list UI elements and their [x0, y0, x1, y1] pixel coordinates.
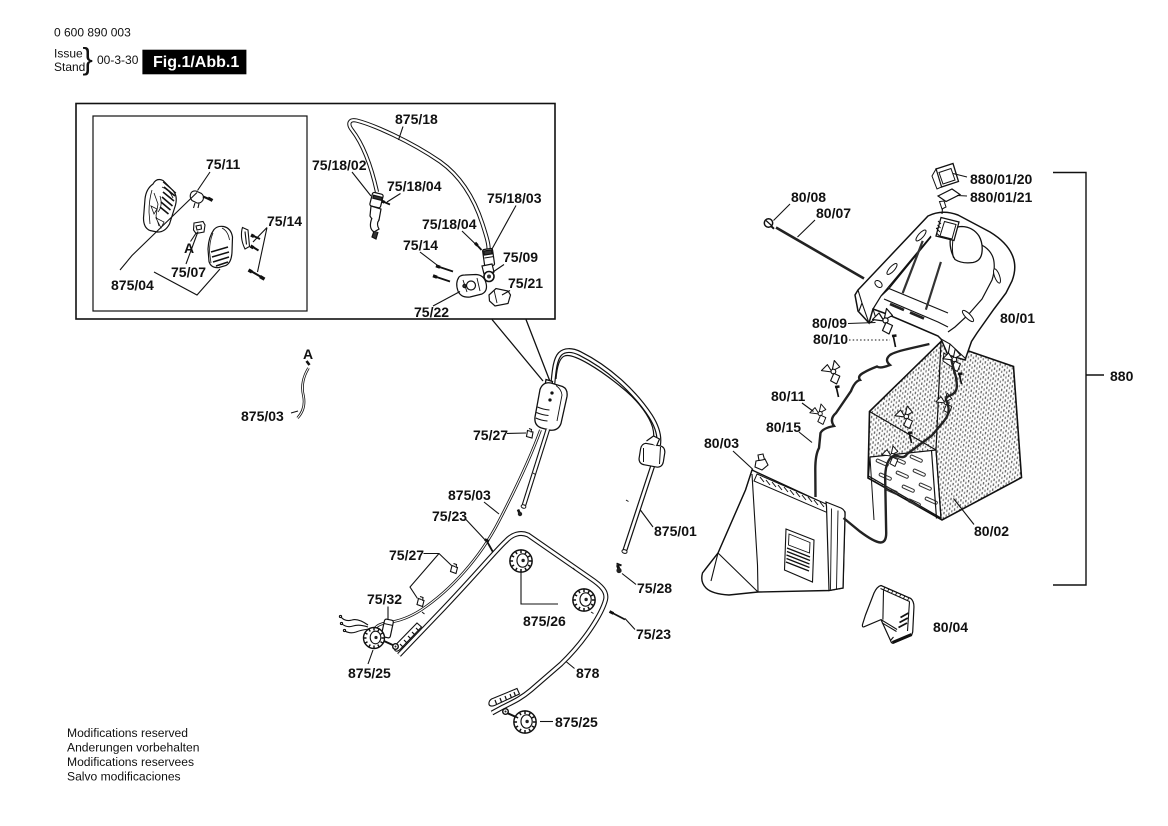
svg-text:75/14: 75/14	[267, 213, 302, 229]
svg-text:80/02: 80/02	[974, 523, 1009, 539]
svg-text:80/15: 80/15	[766, 419, 801, 435]
svg-text:875/03: 875/03	[241, 408, 284, 424]
svg-text:875/25: 875/25	[555, 714, 598, 730]
svg-text:875/04: 875/04	[111, 277, 154, 293]
svg-text:75/21: 75/21	[508, 275, 543, 291]
svg-text:875/03: 875/03	[448, 487, 491, 503]
svg-text:880/01/20: 880/01/20	[970, 171, 1032, 187]
svg-text:880: 880	[1110, 368, 1134, 384]
svg-text:75/18/03: 75/18/03	[487, 190, 542, 206]
svg-text:75/18/04: 75/18/04	[422, 216, 477, 232]
svg-text:75/23: 75/23	[432, 508, 467, 524]
svg-text:A: A	[184, 240, 194, 256]
svg-text:75/11: 75/11	[206, 156, 240, 172]
svg-text:}: }	[83, 41, 93, 76]
svg-text:Issue: Issue	[54, 47, 83, 61]
svg-text:80/09: 80/09	[812, 315, 847, 331]
svg-text:875/18: 875/18	[395, 111, 438, 127]
svg-text:80/07: 80/07	[816, 205, 851, 221]
svg-text:75/18/04: 75/18/04	[387, 178, 442, 194]
svg-text:75/23: 75/23	[636, 626, 671, 642]
svg-text:80/04: 80/04	[933, 619, 968, 635]
svg-text:75/28: 75/28	[637, 580, 672, 596]
svg-text:75/27: 75/27	[389, 547, 424, 563]
svg-text:0 600 890 003: 0 600 890 003	[54, 26, 131, 40]
svg-text:A: A	[303, 346, 313, 362]
svg-text:75/09: 75/09	[503, 249, 538, 265]
svg-text:Modifications reserved: Modifications reserved	[67, 726, 188, 740]
svg-text:75/22: 75/22	[414, 304, 449, 320]
svg-text:75/14: 75/14	[403, 237, 438, 253]
svg-text:80/08: 80/08	[791, 189, 826, 205]
svg-text:75/27: 75/27	[473, 427, 508, 443]
svg-text:875/25: 875/25	[348, 665, 391, 681]
svg-text:875/01: 875/01	[654, 523, 697, 539]
svg-text:75/32: 75/32	[367, 591, 402, 607]
svg-text:80/11: 80/11	[771, 388, 805, 404]
svg-text:875/26: 875/26	[523, 613, 566, 629]
svg-text:878: 878	[576, 665, 600, 681]
svg-text:80/10: 80/10	[813, 331, 848, 347]
svg-text:80/03: 80/03	[704, 435, 739, 451]
svg-text:Stand: Stand	[54, 60, 85, 74]
svg-text:Modifications reservees: Modifications reservees	[67, 755, 194, 769]
svg-text:75/07: 75/07	[171, 264, 206, 280]
svg-text:00-3-30: 00-3-30	[97, 53, 139, 67]
svg-text:Anderungen vorbehalten: Anderungen vorbehalten	[67, 741, 199, 755]
svg-text:Salvo modificaciones: Salvo modificaciones	[67, 770, 181, 784]
svg-text:Fig.1/Abb.1: Fig.1/Abb.1	[153, 54, 239, 71]
svg-text:75/18/02: 75/18/02	[312, 157, 367, 173]
svg-text:80/01: 80/01	[1000, 310, 1035, 326]
svg-text:880/01/21: 880/01/21	[970, 189, 1032, 205]
